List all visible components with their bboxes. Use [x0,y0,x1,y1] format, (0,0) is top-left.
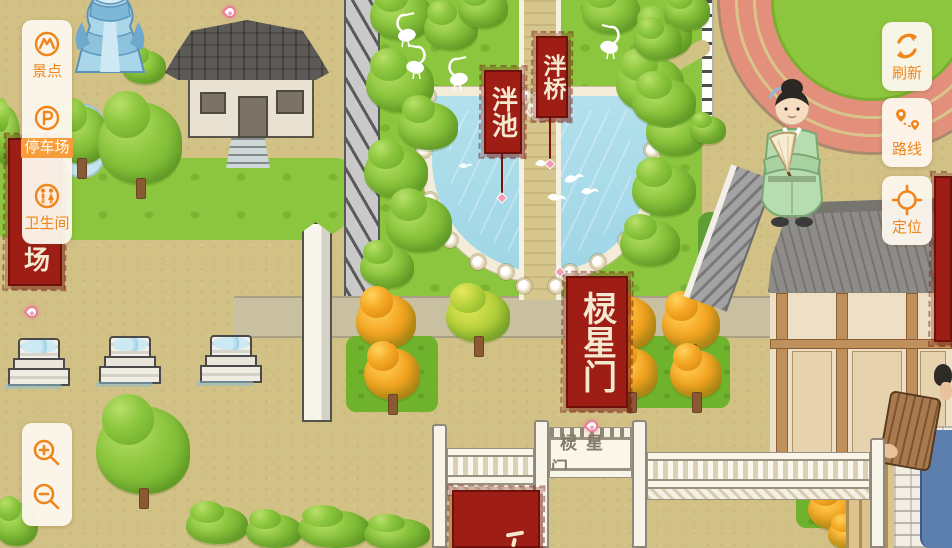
parking-icon [32,103,62,133]
gate-plaque: 棂星门 [549,438,632,470]
refresh-label: 刷新 [892,66,922,83]
house-roof [165,20,329,80]
filter-label: 景点 [32,64,62,81]
house-window [276,90,304,114]
map-pin[interactable] [222,4,239,21]
white-wall [302,222,332,422]
magnifier-plus-icon [31,437,63,469]
bush [298,510,370,548]
locate-icon [891,184,923,216]
scenic-spot-icon [32,29,62,59]
poi-banner-lingxing-gate[interactable]: 棂星门 [566,276,628,408]
banner-text: 泮桥 [535,54,569,100]
egret-icon [442,54,472,92]
route-label: 路线 [892,142,922,159]
poi-banner-pan-pool[interactable]: 泮池 [484,70,522,154]
scholar-figure [748,76,836,236]
figure-face [940,382,952,400]
poi-banner-pan-bridge[interactable]: 泮桥 [536,36,568,118]
gate-beam [447,448,534,456]
temple-beam [770,339,952,349]
filter-restroom[interactable]: 卫生间 [24,181,69,233]
filter-parking[interactable]: 停车场 [30,103,63,159]
railing-post [590,254,606,270]
railing-post [498,264,514,280]
restroom-icon [32,181,62,211]
tree [98,102,182,184]
gate-pillar [432,424,447,548]
statue-blue-dress [58,0,162,80]
gate-pillar [870,438,885,548]
gate-beam [647,452,870,460]
route-icon [891,106,923,138]
locate-label: 定位 [892,220,922,237]
dove-icon [580,184,600,198]
route-button[interactable]: 路线 [882,98,932,167]
temple-pillar [776,293,788,459]
temple-door [792,351,832,455]
gate-balustrade [447,456,534,476]
banner-text: 泮池 [485,86,522,138]
autumn-tree [446,290,510,342]
tree [96,406,190,494]
banner-text: 场 [17,246,54,272]
banner-cord [549,118,551,162]
egret-icon [402,42,432,80]
zoom-out-button[interactable] [31,481,63,513]
gate-beam [647,480,870,488]
map-pin[interactable] [24,304,41,321]
filter-label: 卫生间 [24,216,69,233]
refresh-button[interactable]: 刷新 [882,22,932,91]
gate-beam [549,470,632,478]
tree [386,196,452,252]
gate-lattice [647,488,870,500]
banner-cord [501,154,503,196]
tree [398,102,458,150]
locate-button[interactable]: 定位 [882,176,932,245]
house-door [238,96,268,138]
poi-banner-partial-right [934,176,952,342]
stone-pedestal [200,335,262,387]
tree [360,246,414,288]
autumn-tree [356,294,416,348]
house-steps [226,138,270,168]
tree [634,22,682,60]
house-wall [188,76,314,138]
gate-beam [447,476,534,484]
gate-balustrade [647,460,870,480]
dove-icon [458,160,474,171]
poi-banner-partial-bottom [452,490,540,548]
autumn-tree [364,348,420,400]
campus-map-app: 棂星门 [0,0,952,548]
zoom-controls [22,423,72,526]
tree [620,220,680,266]
railing-post [470,254,486,270]
tree [632,164,696,216]
bush [364,518,430,548]
temple-pillar [836,293,848,459]
egret-icon [596,22,626,60]
map-scene[interactable]: 棂星门 [0,0,952,548]
stone-pedestal [99,336,161,388]
railing-post [516,278,532,294]
autumn-tree [670,350,722,398]
zoom-in-button[interactable] [31,437,63,469]
tree [632,78,696,126]
banner-text: 棂星门 [573,291,622,393]
house-window [200,92,226,114]
filter-scenic-spots[interactable]: 景点 [32,29,62,81]
tree [690,116,726,144]
refresh-icon [891,30,923,62]
poi-filter-panel: 景点 停车场 卫生间 [22,20,72,244]
bush [186,506,248,544]
bush [246,514,302,548]
gate-pillar [632,420,647,548]
stone-pedestal [8,338,70,390]
filter-label: 停车场 [21,138,72,159]
magnifier-minus-icon [31,481,63,513]
